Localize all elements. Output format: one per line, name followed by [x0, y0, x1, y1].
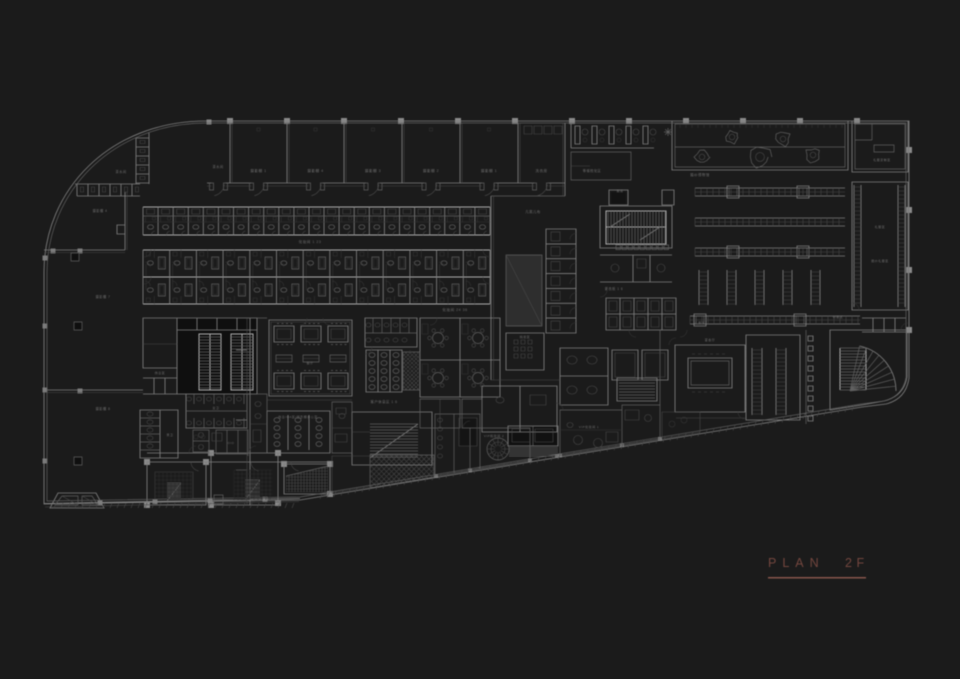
svg-text:摄影棚 1: 摄影棚 1 [481, 168, 497, 173]
svg-text:制服区: 制服区 [833, 314, 844, 319]
svg-text:礼服定制区: 礼服定制区 [873, 157, 891, 162]
svg-text:摄影棚 4: 摄影棚 4 [93, 208, 108, 213]
svg-text:宴会厅: 宴会厅 [705, 337, 716, 342]
svg-text:洗衣房: 洗衣房 [535, 168, 547, 173]
svg-text:化妆间 1 23: 化妆间 1 23 [299, 239, 322, 244]
svg-text:摄影棚 3: 摄影棚 3 [365, 168, 381, 173]
svg-text:女卫: 女卫 [212, 405, 219, 410]
svg-text:OIO: OIO [228, 441, 235, 445]
svg-text:摄影棚 7: 摄影棚 7 [96, 294, 111, 299]
svg-text:凡赛儿布: 凡赛儿布 [525, 209, 541, 214]
svg-text:等候梳化区: 等候梳化区 [583, 168, 602, 173]
svg-text:婚纱博物馆: 婚纱博物馆 [690, 172, 710, 177]
svg-text:男卫: 男卫 [166, 432, 173, 437]
svg-text:休息/OA区/摄影棚办公室: 休息/OA区/摄影棚办公室 [278, 414, 318, 419]
svg-text:VIP化妆间 1: VIP化妆间 1 [579, 424, 599, 429]
svg-text:更衣柜 1 6: 更衣柜 1 6 [605, 286, 623, 291]
svg-text:摄影棚 1: 摄影棚 1 [250, 168, 266, 173]
svg-text:化妆间 24 36: 化妆间 24 36 [442, 307, 467, 312]
svg-text:餐厅: 餐厅 [306, 360, 313, 365]
svg-text:礼服区: 礼服区 [875, 224, 886, 229]
svg-text:梳妆区: 梳妆区 [520, 334, 531, 339]
svg-text:客户休息区 1 6: 客户休息区 1 6 [370, 399, 397, 404]
svg-text:茶水间: 茶水间 [212, 164, 223, 169]
svg-text:婚纱礼服区: 婚纱礼服区 [871, 258, 889, 263]
svg-text:摄影棚 4: 摄影棚 4 [307, 168, 323, 173]
svg-text:茶水间: 茶水间 [115, 169, 126, 174]
svg-text:VIP梳妆间 2: VIP梳妆间 2 [484, 433, 504, 438]
svg-text:2F: 2F [845, 556, 869, 570]
svg-text:摄影棚 2: 摄影棚 2 [423, 168, 439, 173]
svg-text:客房: 客房 [616, 188, 623, 193]
svg-text:摄影棚 8: 摄影棚 8 [96, 406, 111, 411]
svg-text:PLAN: PLAN [768, 556, 825, 570]
svg-text:休息区: 休息区 [155, 370, 166, 375]
